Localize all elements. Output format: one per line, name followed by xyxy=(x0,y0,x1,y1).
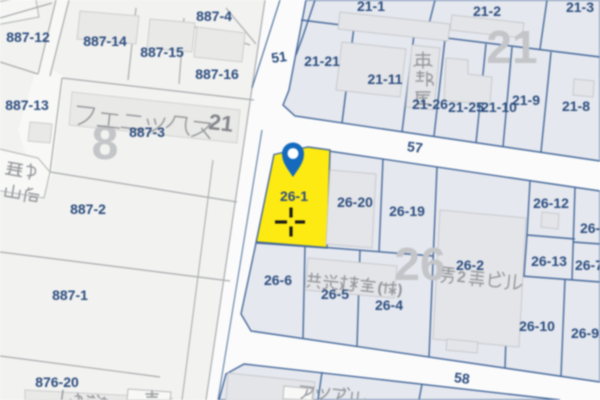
svg-text:26-4: 26-4 xyxy=(375,297,403,313)
svg-text:876-20: 876-20 xyxy=(35,374,79,390)
svg-text:57: 57 xyxy=(406,138,424,156)
svg-text:26-19: 26-19 xyxy=(389,203,425,219)
svg-text:51: 51 xyxy=(270,48,288,66)
svg-text:26-5: 26-5 xyxy=(321,286,349,302)
svg-text:26-12: 26-12 xyxy=(533,195,569,211)
svg-text:26-2: 26-2 xyxy=(456,257,484,273)
svg-text:21: 21 xyxy=(207,109,234,137)
svg-text:887-4: 887-4 xyxy=(196,8,232,24)
svg-text:21-11: 21-11 xyxy=(367,71,402,87)
svg-text:887-1: 887-1 xyxy=(52,287,88,303)
svg-text:21-2: 21-2 xyxy=(473,3,501,19)
svg-text:21-26: 21-26 xyxy=(412,96,448,112)
svg-text:21-3: 21-3 xyxy=(566,0,594,15)
svg-text:21-25: 21-25 xyxy=(448,99,484,115)
svg-text:26-6: 26-6 xyxy=(264,272,292,288)
svg-text:26-1: 26-1 xyxy=(280,188,308,204)
svg-text:26-13: 26-13 xyxy=(531,253,567,269)
svg-text:887-2: 887-2 xyxy=(70,201,106,217)
svg-text:21-21: 21-21 xyxy=(304,53,340,69)
svg-text:887-3: 887-3 xyxy=(129,124,165,140)
svg-text:887-13: 887-13 xyxy=(5,97,49,113)
svg-text:8: 8 xyxy=(92,117,119,170)
svg-text:887-16: 887-16 xyxy=(195,66,239,82)
svg-text:21-8: 21-8 xyxy=(562,98,590,114)
svg-text:26-9: 26-9 xyxy=(571,325,599,341)
svg-text:26-7: 26-7 xyxy=(575,257,600,273)
svg-text:887-15: 887-15 xyxy=(140,44,184,60)
svg-text:26-3: 26-3 xyxy=(580,220,600,236)
svg-text:26-20: 26-20 xyxy=(337,194,373,210)
svg-text:21-9: 21-9 xyxy=(512,92,540,108)
svg-text:21-1: 21-1 xyxy=(357,0,385,14)
svg-text:887-14: 887-14 xyxy=(83,33,127,49)
svg-text:21: 21 xyxy=(486,21,537,73)
svg-text:26-10: 26-10 xyxy=(519,318,555,334)
svg-text:887-12: 887-12 xyxy=(6,29,50,45)
svg-text:58: 58 xyxy=(453,369,471,387)
